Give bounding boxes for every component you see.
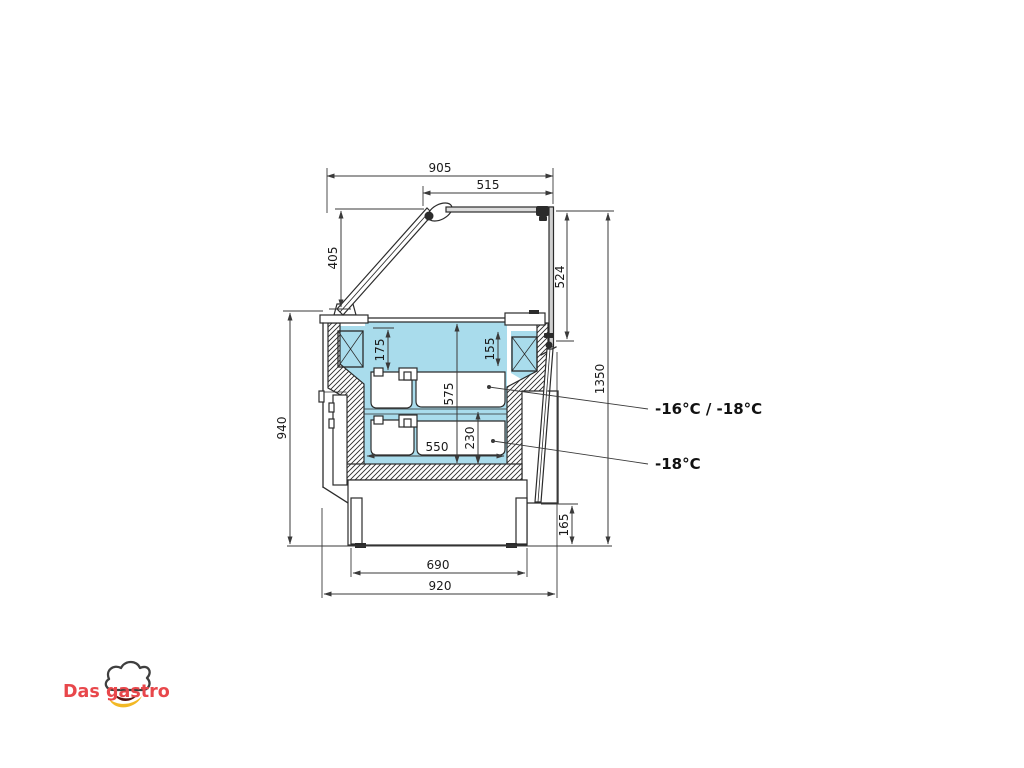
dim-165: 165 (541, 504, 578, 544)
lamp-cap (425, 212, 434, 221)
dim-label-524: 524 (553, 266, 567, 289)
rear-ledge-cap (529, 310, 539, 314)
dim-label-515: 515 (477, 178, 500, 192)
rear-glass-hinge (546, 342, 553, 349)
rear-glass-mount (544, 333, 554, 338)
dim-label-1350: 1350 (593, 364, 607, 395)
front-handle (319, 391, 324, 402)
tub-clip (404, 372, 411, 380)
dim-405: 405 (326, 209, 424, 309)
dim-label-920: 920 (429, 579, 452, 593)
dim-label-230: 230 (463, 427, 477, 450)
front-ledge (320, 315, 368, 323)
temperature-annotations: -16°C / -18°C -18°C (487, 385, 762, 473)
dim-label-155: 155 (483, 338, 497, 361)
front-skin-chamfer (323, 487, 348, 503)
dim-label-550: 550 (426, 440, 449, 454)
dim-label-405: 405 (326, 247, 340, 270)
door-hinge (329, 403, 334, 412)
dim-524: 524 (553, 211, 614, 341)
right-foot (506, 543, 517, 548)
dim-label-175: 175 (373, 339, 387, 362)
technical-drawing-page: 905 515 405 524 1350 940 (0, 0, 1024, 768)
cabinet-body (319, 199, 558, 548)
tub-clip (374, 368, 383, 376)
base-plinth (348, 480, 527, 548)
upper-large-tub (416, 372, 505, 407)
dim-1350: 1350 (593, 213, 608, 544)
door-hinge (329, 419, 334, 428)
right-leg (516, 498, 527, 544)
logo-word-das: Das (63, 682, 100, 702)
dim-label-940: 940 (275, 417, 289, 440)
dim-940: 940 (275, 311, 323, 544)
lower-temp-label: -18°C (655, 455, 701, 473)
upper-temp-label: -16°C / -18°C (655, 400, 762, 418)
dim-label-905: 905 (429, 161, 452, 175)
front-service-door (333, 395, 347, 485)
left-foot (355, 543, 366, 548)
logo-word-gastro: gastro (106, 682, 170, 702)
front-glass-inner-line (340, 211, 430, 312)
base-box (348, 480, 527, 545)
canopy-corner-fitting (536, 206, 549, 216)
tub-clip (374, 416, 383, 424)
left-leg (351, 498, 362, 544)
dim-label-165: 165 (557, 514, 571, 537)
dasgastro-logo: Das gastro (63, 662, 170, 707)
canopy-corner-fitting2 (539, 216, 547, 221)
dim-label-575: 575 (442, 383, 456, 406)
tub-clip (404, 419, 411, 427)
rear-ledge (505, 313, 545, 325)
bottom-insulated-wall (346, 464, 522, 480)
dim-690: 690 (351, 548, 527, 577)
dim-label-690: 690 (427, 558, 450, 572)
freezer-cross-section-drawing: 905 515 405 524 1350 940 (0, 0, 1024, 768)
dim-515: 515 (423, 178, 553, 206)
